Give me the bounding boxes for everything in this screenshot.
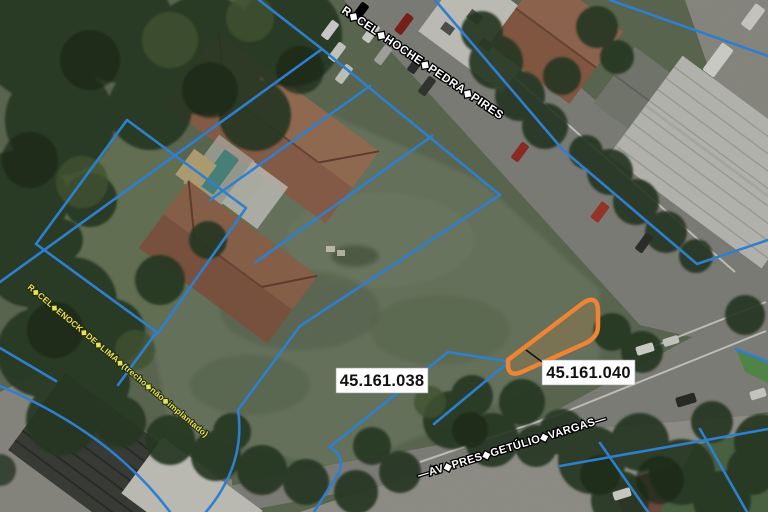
parcel-number-text: 45.161.038 (340, 372, 425, 390)
map-viewport[interactable]: R◆CEL◆HOCHE◆PEDRA◆PIRES R◆CEL◆ENOCK◆DE◆L… (0, 0, 768, 512)
field-object (337, 250, 345, 256)
parcel-number-text: 45.161.040 (546, 364, 631, 382)
field-object (326, 246, 335, 252)
aerial-imagery (0, 0, 768, 512)
parcel-label-45-161-040[interactable]: 45.161.040 (542, 360, 635, 385)
parcel-label-45-161-038[interactable]: 45.161.038 (336, 368, 428, 393)
